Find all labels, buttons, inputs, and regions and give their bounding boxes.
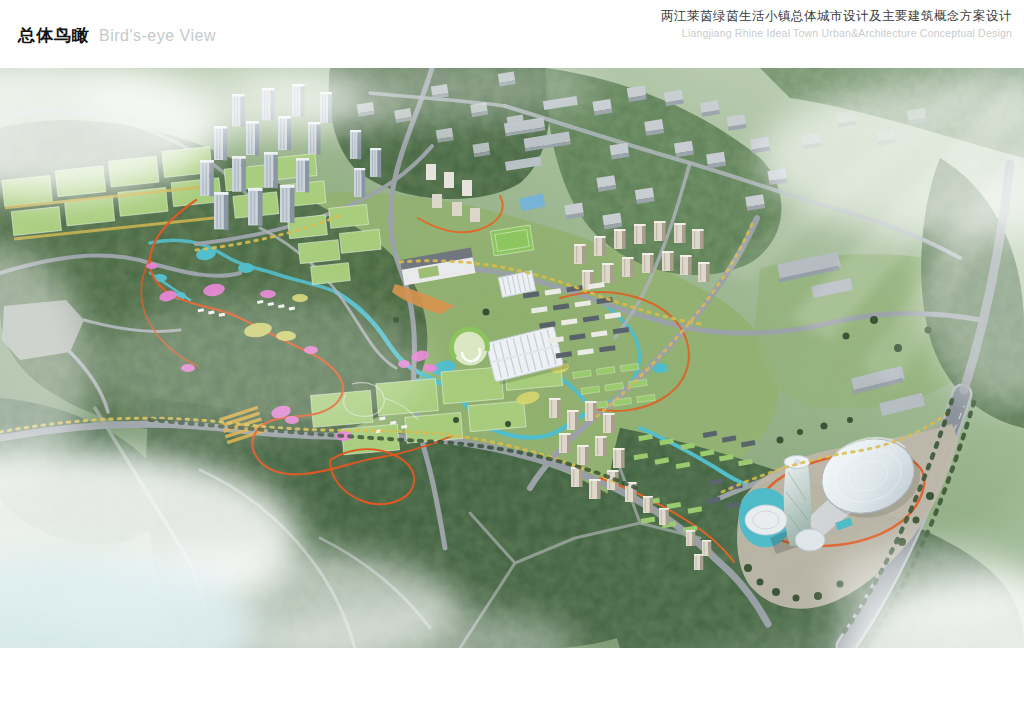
birdseye-rendering-image — [0, 68, 1024, 648]
birdseye-rendering-svg — [0, 68, 1024, 648]
section-title-en: Bird's-eye View — [99, 27, 216, 44]
project-title: 两江莱茵绿茵生活小镇总体城市设计及主要建筑概念方案设计 Liangjiang R… — [661, 8, 1012, 39]
section-title-zh: 总体鸟瞰 — [18, 26, 90, 45]
fog-clouds — [0, 68, 1024, 648]
slide-header: 总体鸟瞰Bird's-eye View 两江莱茵绿茵生活小镇总体城市设计及主要建… — [0, 0, 1024, 68]
section-title: 总体鸟瞰Bird's-eye View — [18, 24, 216, 47]
project-title-zh: 两江莱茵绿茵生活小镇总体城市设计及主要建筑概念方案设计 — [661, 8, 1012, 25]
project-title-en: Liangjiang Rhine Ideal Town Urban&Archit… — [661, 27, 1012, 39]
slide-footer — [0, 648, 1024, 717]
